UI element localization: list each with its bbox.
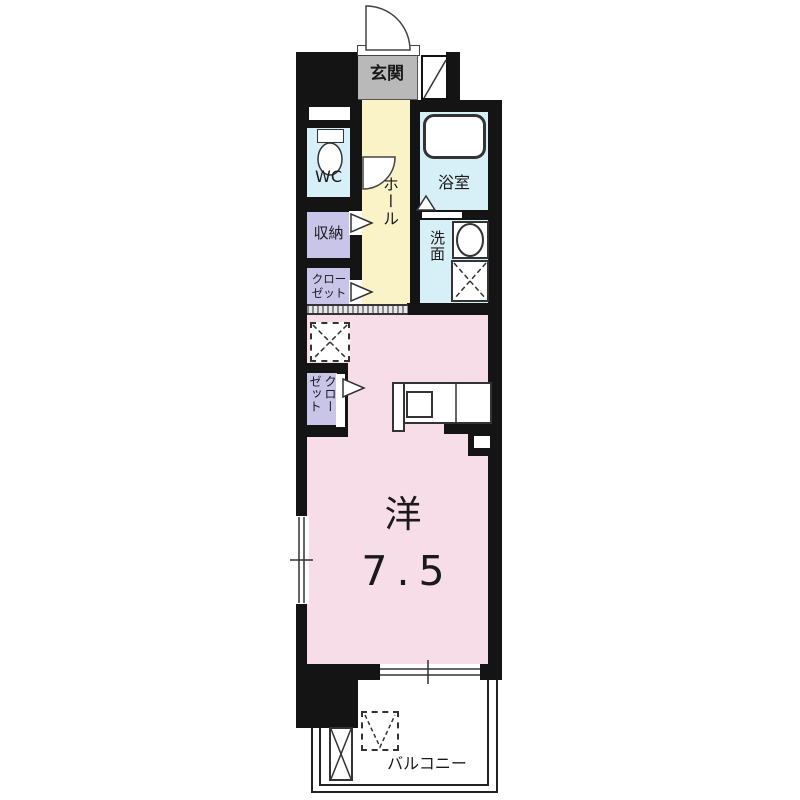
sink-counter-icon <box>452 221 489 259</box>
wall-vent <box>309 107 355 120</box>
wall <box>296 664 358 728</box>
door-gap-closet-upper <box>349 280 362 304</box>
wall-notch <box>474 436 490 448</box>
wall <box>296 52 358 100</box>
room-label-closet-upper: クローゼット <box>308 272 350 300</box>
evacuation-hatch-icon <box>329 727 353 781</box>
pipe-space <box>421 55 448 100</box>
wall <box>407 303 502 315</box>
room-label-wc: WC <box>307 168 350 186</box>
wall <box>350 100 362 305</box>
toilet-tank-icon <box>317 129 344 143</box>
room-label-closet-lower: クローゼット <box>305 375 337 421</box>
ac-unit-space <box>361 711 399 751</box>
entrance-door-sill <box>357 45 420 56</box>
door-sill <box>422 212 462 218</box>
door-leaf-closet-lower <box>336 374 345 427</box>
room-label-living: 洋 <box>348 494 458 537</box>
room-label-balcony: バルコニー <box>357 755 497 773</box>
entrance-door-swing-arc <box>366 6 410 50</box>
window-left <box>294 516 309 604</box>
wall <box>410 100 420 305</box>
room-label-genkan: 玄関 <box>356 65 418 85</box>
wall <box>296 363 348 373</box>
threshold-hatch <box>307 304 408 315</box>
floor-plan: 玄関 WC ホール 浴室 洗面 収納 クローゼット クローゼット 洋 7.5 バ… <box>0 0 800 800</box>
room-label-bath: 浴室 <box>420 174 488 192</box>
room-label-storage: 収納 <box>307 225 350 242</box>
wall <box>358 664 382 680</box>
room-size-living: 7.5 <box>348 548 458 595</box>
kitchen-counter-leg <box>392 382 405 432</box>
wall <box>480 664 502 680</box>
wall <box>307 258 350 268</box>
bathtub-icon <box>423 114 486 159</box>
wall <box>307 197 350 212</box>
wall <box>446 52 460 100</box>
refrigerator-space <box>310 322 350 362</box>
room-label-washroom: 洗面 <box>425 230 445 284</box>
room-label-hall: ホール <box>374 176 398 262</box>
stove-icon <box>406 391 433 418</box>
window-balcony <box>380 664 480 680</box>
washing-machine-space <box>451 260 489 302</box>
door-gap-storage <box>349 211 362 235</box>
